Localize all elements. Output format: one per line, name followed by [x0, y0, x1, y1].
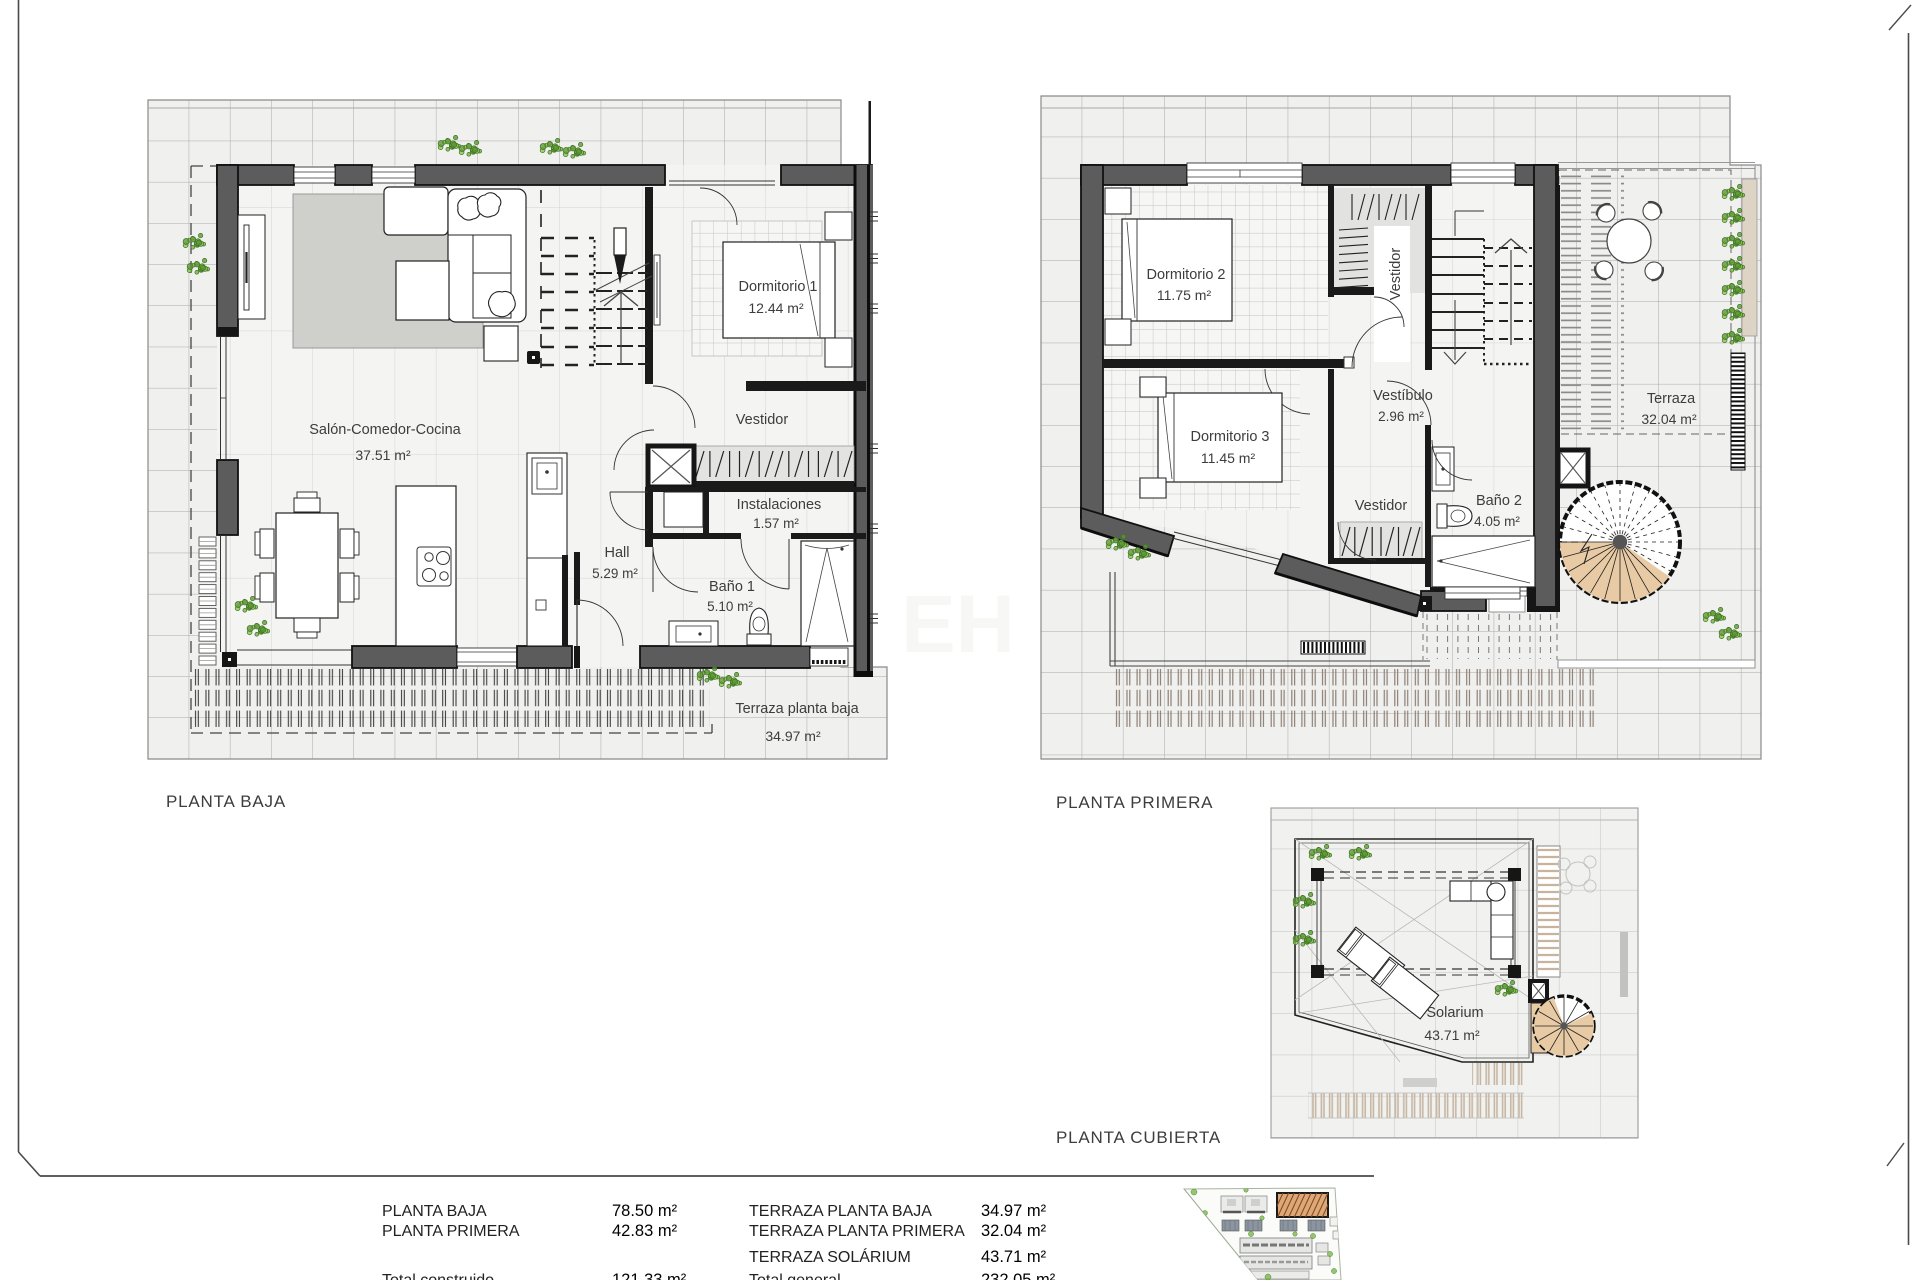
svg-text:PLANTA PRIMERA: PLANTA PRIMERA — [382, 1223, 520, 1240]
svg-text:TERRAZA PLANTA PRIMERA: TERRAZA PLANTA PRIMERA — [749, 1223, 965, 1240]
svg-text:TERRAZA PLANTA BAJA: TERRAZA PLANTA BAJA — [749, 1203, 932, 1220]
svg-text:12.44 m²: 12.44 m² — [748, 300, 804, 316]
svg-text:Total general: Total general — [749, 1272, 841, 1280]
svg-text:EH: EH — [901, 579, 1015, 670]
svg-text:34.97 m²: 34.97 m² — [765, 728, 821, 744]
svg-text:43.71 m²: 43.71 m² — [1424, 1027, 1480, 1043]
svg-text:5.10 m²: 5.10 m² — [707, 599, 753, 614]
svg-text:2.96 m²: 2.96 m² — [1378, 409, 1424, 424]
svg-text:Vestíbulo: Vestíbulo — [1373, 388, 1433, 404]
svg-text:Hall: Hall — [605, 545, 630, 561]
svg-text:Total construido: Total construido — [382, 1272, 494, 1280]
svg-text:Vestidor: Vestidor — [1355, 498, 1408, 514]
svg-text:Salón-Comedor-Cocina: Salón-Comedor-Cocina — [309, 422, 461, 438]
svg-text:Terraza: Terraza — [1647, 391, 1696, 407]
svg-text:Vestidor: Vestidor — [736, 412, 789, 428]
svg-text:1.57 m²: 1.57 m² — [753, 516, 799, 531]
svg-text:PLANTA BAJA: PLANTA BAJA — [166, 792, 286, 811]
svg-text:Instalaciones: Instalaciones — [737, 497, 822, 513]
svg-text:232.05 m²: 232.05 m² — [981, 1271, 1056, 1280]
svg-text:TERRAZA SOLÁRIUM: TERRAZA SOLÁRIUM — [749, 1247, 911, 1266]
svg-text:11.75 m²: 11.75 m² — [1157, 287, 1212, 303]
svg-text:PLANTA BAJA: PLANTA BAJA — [382, 1203, 487, 1220]
svg-text:PLANTA PRIMERA: PLANTA PRIMERA — [1056, 793, 1213, 812]
svg-text:Dormitorio 2: Dormitorio 2 — [1147, 267, 1226, 283]
svg-text:Dormitorio 3: Dormitorio 3 — [1191, 429, 1270, 445]
svg-text:5.29 m²: 5.29 m² — [592, 566, 638, 581]
svg-text:Baño 1: Baño 1 — [709, 579, 755, 595]
svg-text:Baño 2: Baño 2 — [1476, 493, 1522, 509]
svg-text:PLANTA CUBIERTA: PLANTA CUBIERTA — [1056, 1128, 1221, 1147]
svg-text:Solarium: Solarium — [1426, 1005, 1483, 1021]
svg-text:Vestidor: Vestidor — [1388, 248, 1404, 301]
svg-text:Terraza planta baja: Terraza planta baja — [735, 701, 859, 717]
svg-text:43.71 m²: 43.71 m² — [981, 1248, 1047, 1266]
svg-text:32.04 m²: 32.04 m² — [1641, 411, 1697, 427]
svg-text:42.83 m²: 42.83 m² — [612, 1222, 678, 1240]
svg-text:37.51 m²: 37.51 m² — [355, 447, 411, 463]
svg-text:121.33 m²: 121.33 m² — [612, 1271, 687, 1280]
svg-text:11.45 m²: 11.45 m² — [1201, 450, 1256, 466]
svg-text:78.50 m²: 78.50 m² — [612, 1202, 678, 1220]
svg-text:Dormitorio 1: Dormitorio 1 — [739, 279, 818, 295]
svg-text:34.97 m²: 34.97 m² — [981, 1202, 1047, 1220]
svg-text:4.05 m²: 4.05 m² — [1474, 514, 1520, 529]
svg-text:32.04 m²: 32.04 m² — [981, 1222, 1047, 1240]
